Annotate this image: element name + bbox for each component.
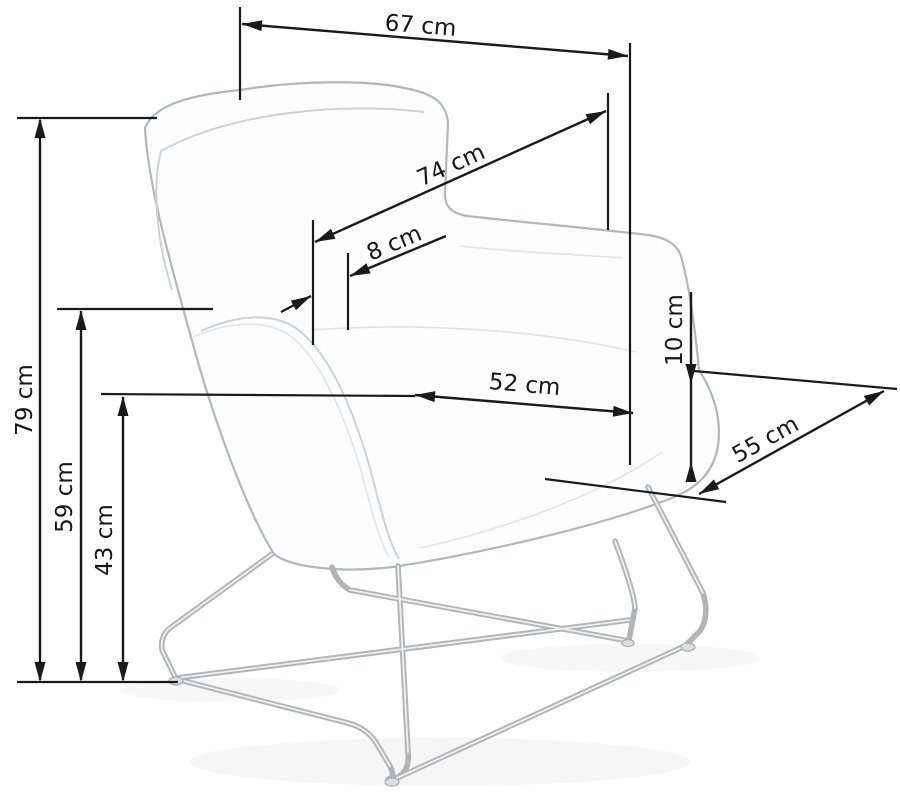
- arrowhead: [35, 662, 46, 682]
- base-foot: [622, 640, 634, 647]
- arrowhead: [864, 391, 884, 406]
- dim-overall-height: 79 cm: [12, 118, 157, 682]
- arrowhead: [118, 396, 129, 416]
- dimension-label: 59 cm: [52, 461, 78, 533]
- base-foot: [385, 778, 399, 786]
- base-right-leg: [648, 487, 706, 644]
- dim-armrest-height: 59 cm: [52, 309, 213, 682]
- dimension-label: 10 cm: [662, 294, 688, 366]
- dimension-drawing-canvas: 67 cm 74 cm 8 cm 79 cm 59 cm: [0, 0, 900, 811]
- arrowhead: [242, 20, 262, 31]
- dimension-line: [699, 391, 884, 494]
- dimension-label: 55 cm: [728, 411, 803, 468]
- arrowhead: [76, 310, 87, 330]
- base-left-upright: [162, 554, 272, 679]
- dimension-label: 43 cm: [92, 504, 118, 576]
- arrowhead: [699, 480, 719, 495]
- dimension-label: 79 cm: [12, 364, 38, 436]
- arrowhead: [118, 662, 129, 682]
- arrowhead: [608, 49, 628, 60]
- arrowhead: [76, 662, 87, 682]
- base-foot: [681, 643, 695, 651]
- arrowhead: [586, 111, 607, 124]
- reference-line: [694, 371, 897, 389]
- armchair-dimension-diagram: 67 cm 74 cm 8 cm 79 cm 59 cm: [0, 0, 900, 811]
- arrowhead: [35, 118, 46, 138]
- floor-shadow: [120, 644, 760, 786]
